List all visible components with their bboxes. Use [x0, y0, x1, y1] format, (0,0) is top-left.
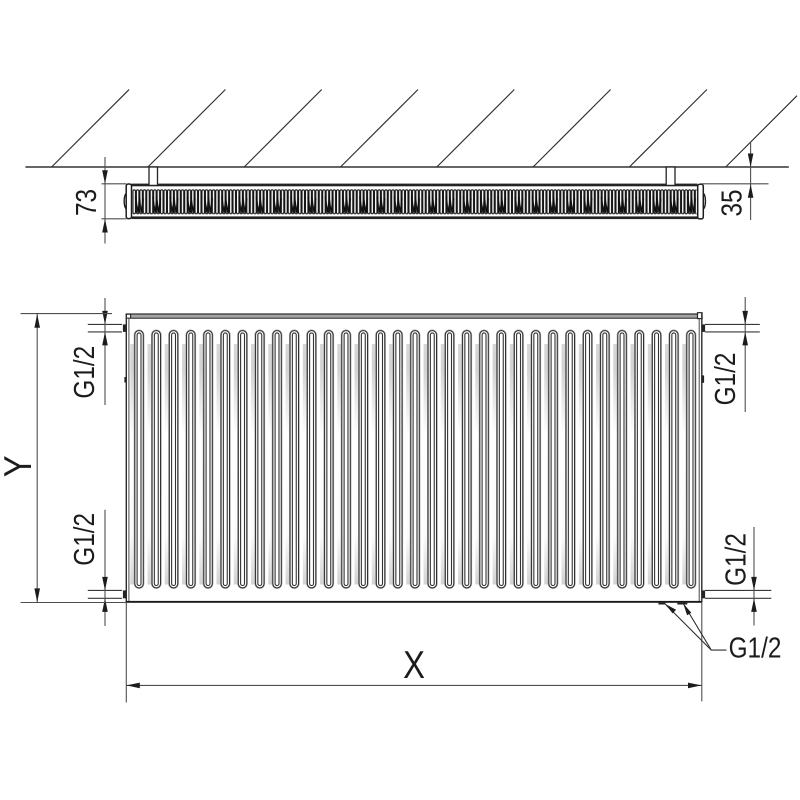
svg-text:35: 35 — [716, 189, 748, 216]
svg-text:X: X — [403, 642, 425, 686]
svg-text:G1/2: G1/2 — [68, 513, 100, 566]
svg-text:G1/2: G1/2 — [709, 353, 741, 406]
svg-text:G1/2: G1/2 — [729, 632, 782, 664]
svg-text:G1/2: G1/2 — [719, 533, 751, 586]
svg-text:Y: Y — [0, 455, 40, 477]
svg-text:G1/2: G1/2 — [68, 346, 100, 399]
svg-text:73: 73 — [70, 189, 102, 216]
